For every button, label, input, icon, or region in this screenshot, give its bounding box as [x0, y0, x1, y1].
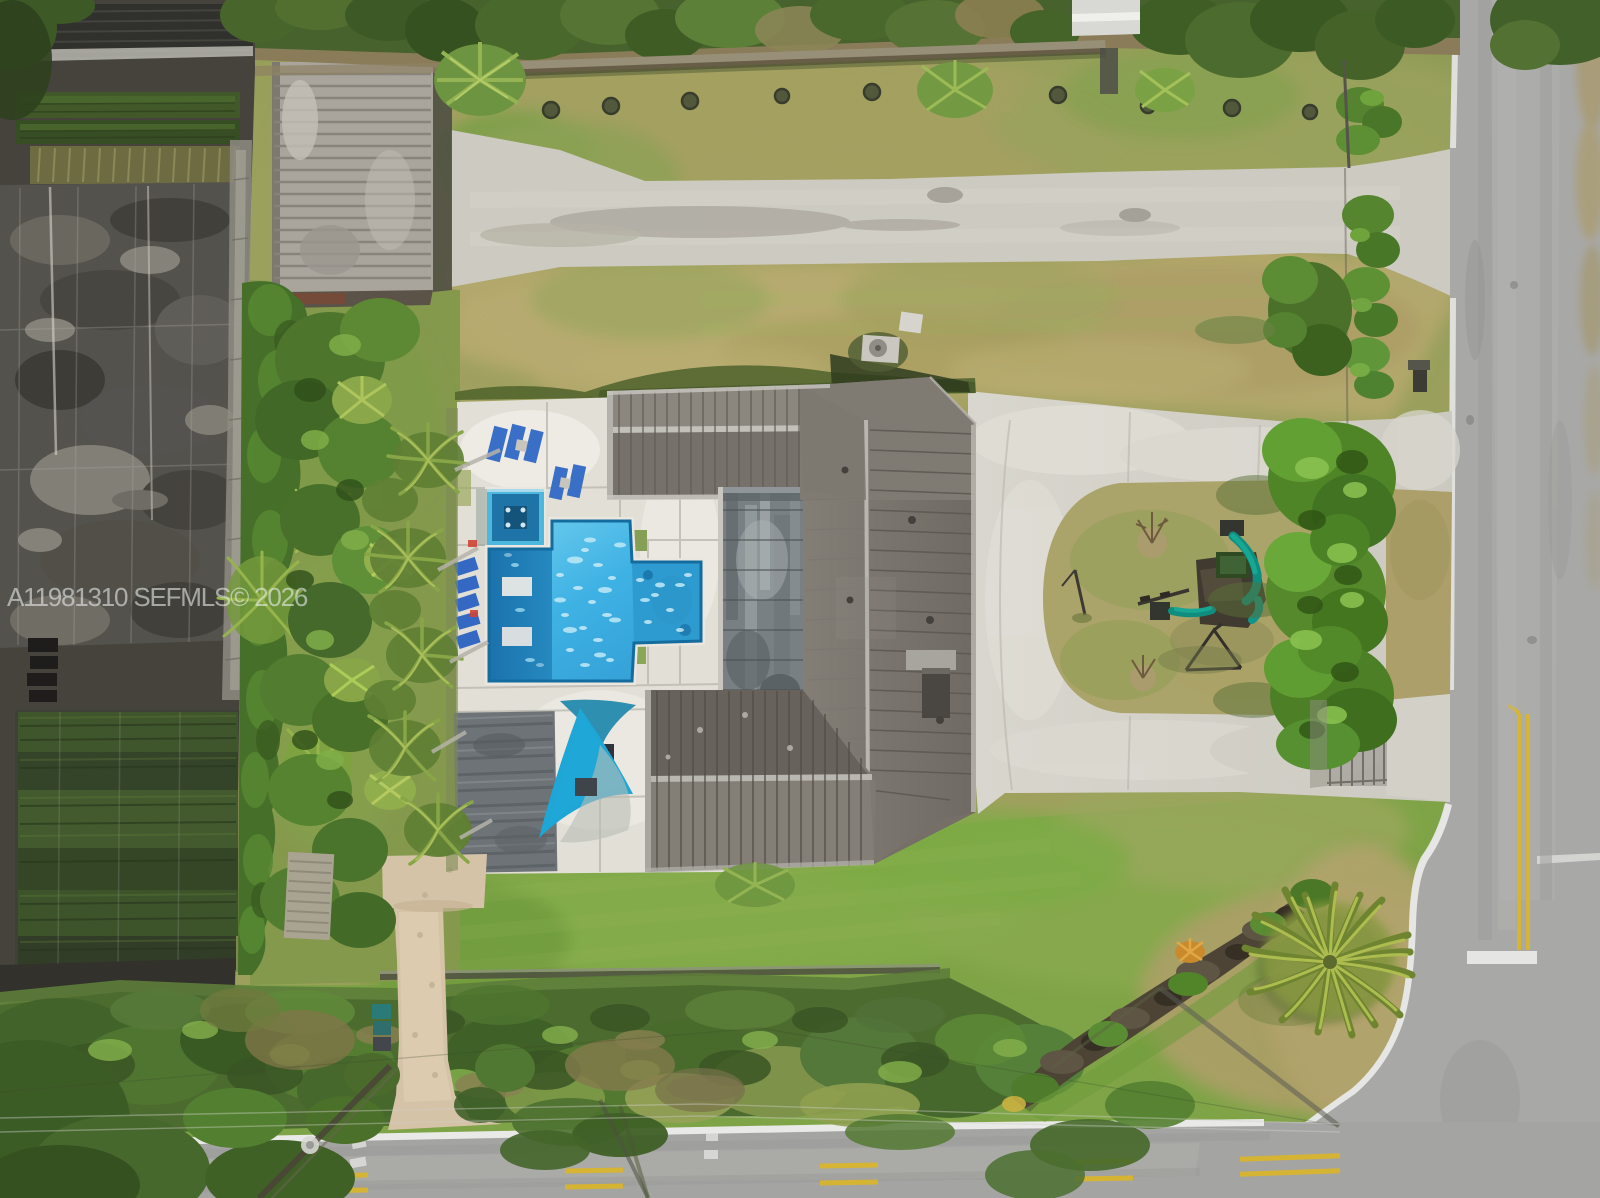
svg-text:A11981310 SEFMLS© 2026: A11981310 SEFMLS© 2026 [7, 582, 308, 612]
